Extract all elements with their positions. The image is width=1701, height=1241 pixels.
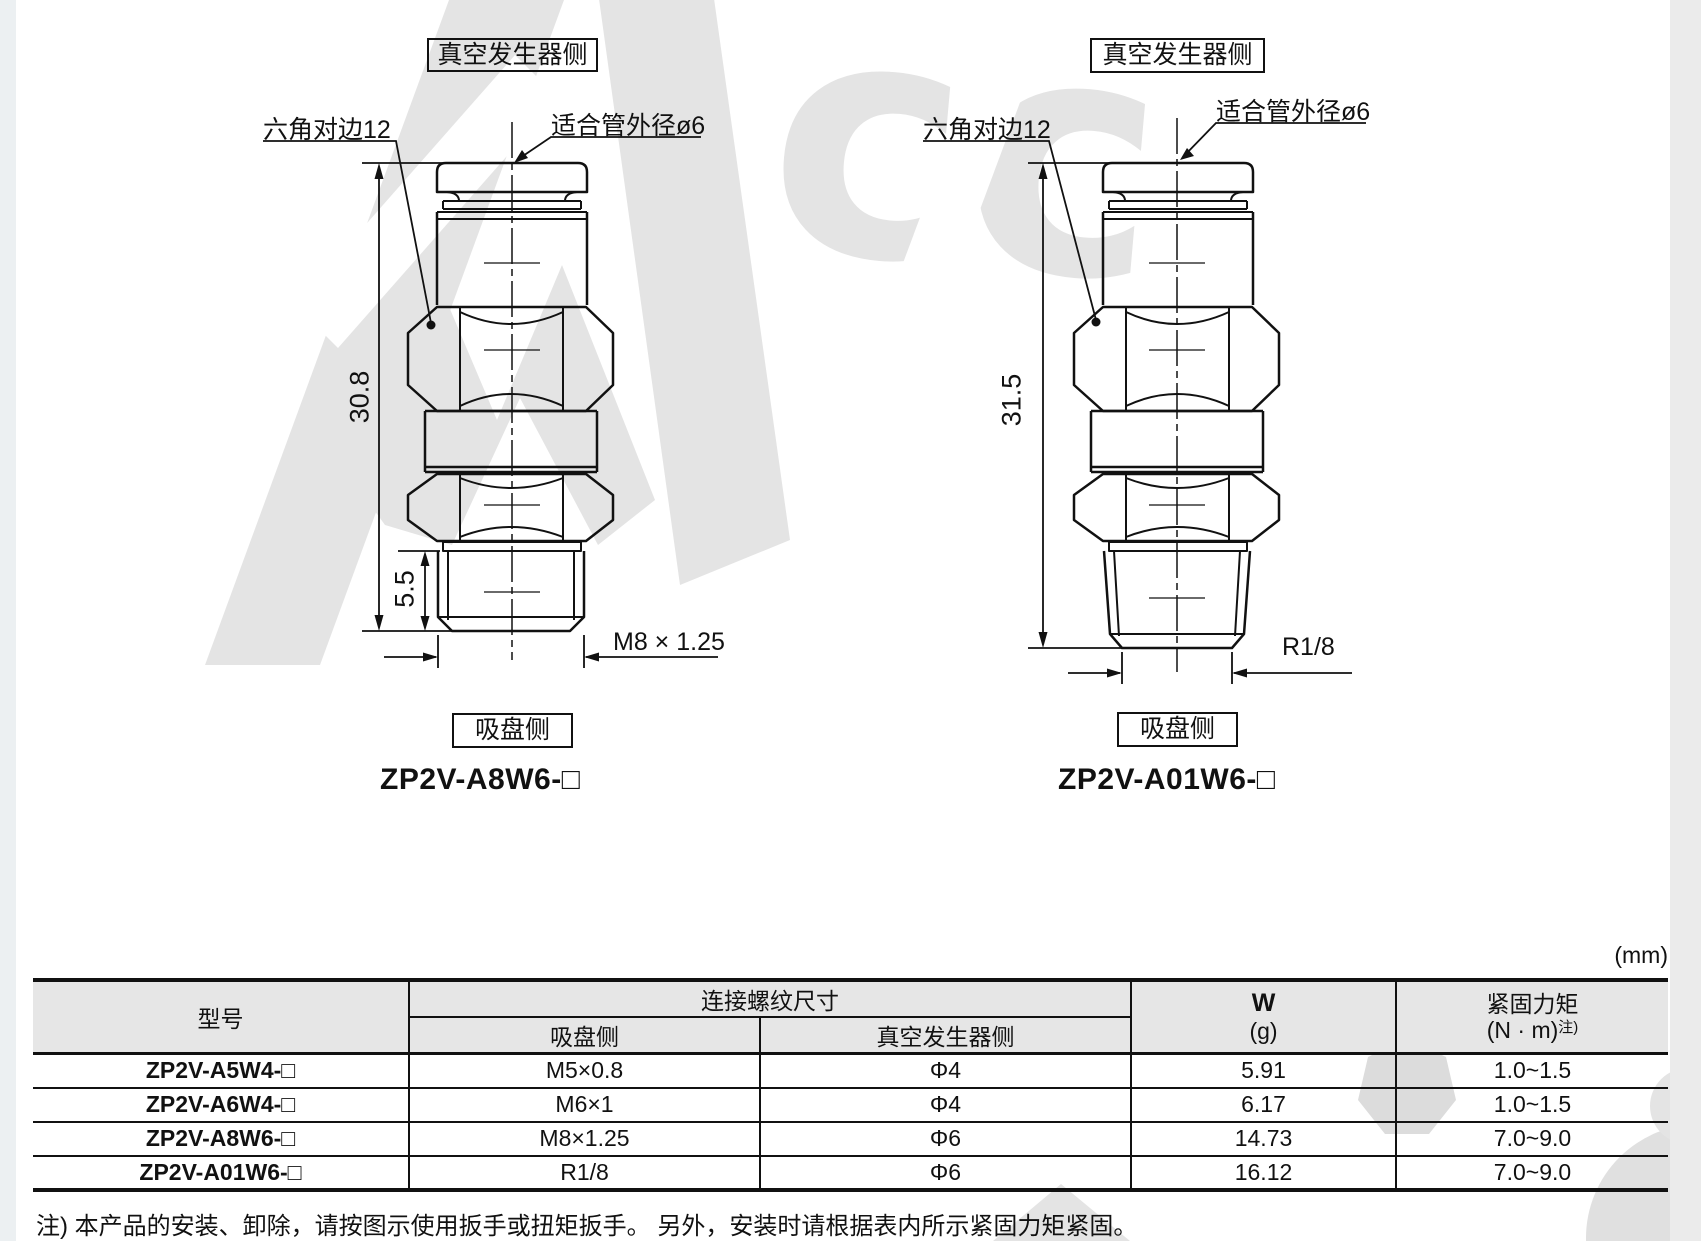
right-overall-height-dim: 31.5 <box>997 374 1028 427</box>
right-thread-spec-label: R1/8 <box>1282 633 1335 662</box>
fitting-drawing-left <box>408 122 613 660</box>
cell-model: ZP2V-A8W6-□ <box>33 1122 409 1156</box>
cell-generator-thread: Φ6 <box>760 1122 1131 1156</box>
cell-weight: 14.73 <box>1131 1122 1396 1156</box>
col-header-torque-unit-line: (N · m)注) <box>1397 1017 1668 1043</box>
spec-table-wrap: 型号 连接螺纹尺寸 W (g) 紧固力矩 (N · m)注) <box>33 978 1668 1192</box>
left-model-name: ZP2V-A8W6-□ <box>380 763 580 797</box>
table-row: ZP2V-A6W4-□ M6×1 Φ4 6.17 1.0~1.5 <box>33 1088 1668 1122</box>
page-edge-strip-left <box>0 0 16 1241</box>
cell-model: ZP2V-A5W4-□ <box>33 1054 409 1088</box>
cell-torque: 1.0~1.5 <box>1396 1088 1668 1122</box>
left-thread-length-dim: 5.5 <box>390 570 421 608</box>
cell-pad-thread: M6×1 <box>409 1088 760 1122</box>
cell-weight: 6.17 <box>1131 1088 1396 1122</box>
left-bottom-side-label: 吸盘侧 <box>452 713 573 748</box>
cell-pad-thread: M5×0.8 <box>409 1054 760 1088</box>
cell-weight: 16.12 <box>1131 1156 1396 1190</box>
table-row: ZP2V-A5W4-□ M5×0.8 Φ4 5.91 1.0~1.5 <box>33 1054 1668 1088</box>
col-header-pad-side: 吸盘侧 <box>409 1017 760 1054</box>
fitting-drawing-right <box>1074 118 1279 672</box>
right-tube-od-label: 适合管外径ø6 <box>1216 92 1370 128</box>
right-model-name: ZP2V-A01W6-□ <box>1058 763 1276 797</box>
left-overall-height-dim: 30.8 <box>345 371 376 424</box>
col-header-torque-unit: (N · m) <box>1487 1017 1559 1043</box>
cell-pad-thread: R1/8 <box>409 1156 760 1190</box>
cell-pad-thread: M8×1.25 <box>409 1122 760 1156</box>
col-header-thread-group: 连接螺纹尺寸 <box>409 980 1131 1017</box>
table-row: ZP2V-A8W6-□ M8×1.25 Φ6 14.73 7.0~9.0 <box>33 1122 1668 1156</box>
left-hex-flats-label: 六角对边12 <box>263 110 391 146</box>
cell-generator-thread: Φ6 <box>760 1156 1131 1190</box>
col-header-generator-side: 真空发生器侧 <box>760 1017 1131 1054</box>
installation-note: 注) 本产品的安装、卸除，请按图示使用扳手或扭矩扳手。 另外，安装时请根据表内所… <box>36 1206 1137 1241</box>
right-bottom-side-label: 吸盘侧 <box>1117 712 1238 747</box>
dimensions-right <box>923 123 1366 684</box>
dimensions-left <box>263 137 718 668</box>
cell-model: ZP2V-A01W6-□ <box>33 1156 409 1190</box>
cell-weight: 5.91 <box>1131 1054 1396 1088</box>
col-header-weight: W (g) <box>1131 980 1396 1054</box>
right-hex-flats-label: 六角对边12 <box>923 110 1051 146</box>
spec-table: 型号 连接螺纹尺寸 W (g) 紧固力矩 (N · m)注) <box>33 978 1668 1192</box>
col-header-torque: 紧固力矩 (N · m)注) <box>1396 980 1668 1054</box>
left-thread-spec-label: M8 × 1.25 <box>613 628 725 657</box>
cell-torque: 7.0~9.0 <box>1396 1156 1668 1190</box>
col-header-torque-note-sup: 注) <box>1558 1019 1578 1036</box>
col-header-weight-unit: (g) <box>1132 1018 1395 1044</box>
left-tube-od-label: 适合管外径ø6 <box>551 106 705 142</box>
cell-torque: 1.0~1.5 <box>1396 1054 1668 1088</box>
catalog-page: cc <box>0 0 1701 1241</box>
right-top-side-label: 真空发生器侧 <box>1090 38 1265 73</box>
table-row: ZP2V-A01W6-□ R1/8 Φ6 16.12 7.0~9.0 <box>33 1156 1668 1190</box>
page-edge-strip-right <box>1670 0 1701 1241</box>
cell-torque: 7.0~9.0 <box>1396 1122 1668 1156</box>
unit-label-mm: (mm) <box>1500 942 1668 969</box>
left-top-side-label: 真空发生器侧 <box>427 38 598 72</box>
col-header-model: 型号 <box>33 980 409 1054</box>
cell-generator-thread: Φ4 <box>760 1054 1131 1088</box>
cell-generator-thread: Φ4 <box>760 1088 1131 1122</box>
col-header-torque-title: 紧固力矩 <box>1397 991 1668 1017</box>
col-header-weight-symbol: W <box>1132 989 1395 1018</box>
cell-model: ZP2V-A6W4-□ <box>33 1088 409 1122</box>
